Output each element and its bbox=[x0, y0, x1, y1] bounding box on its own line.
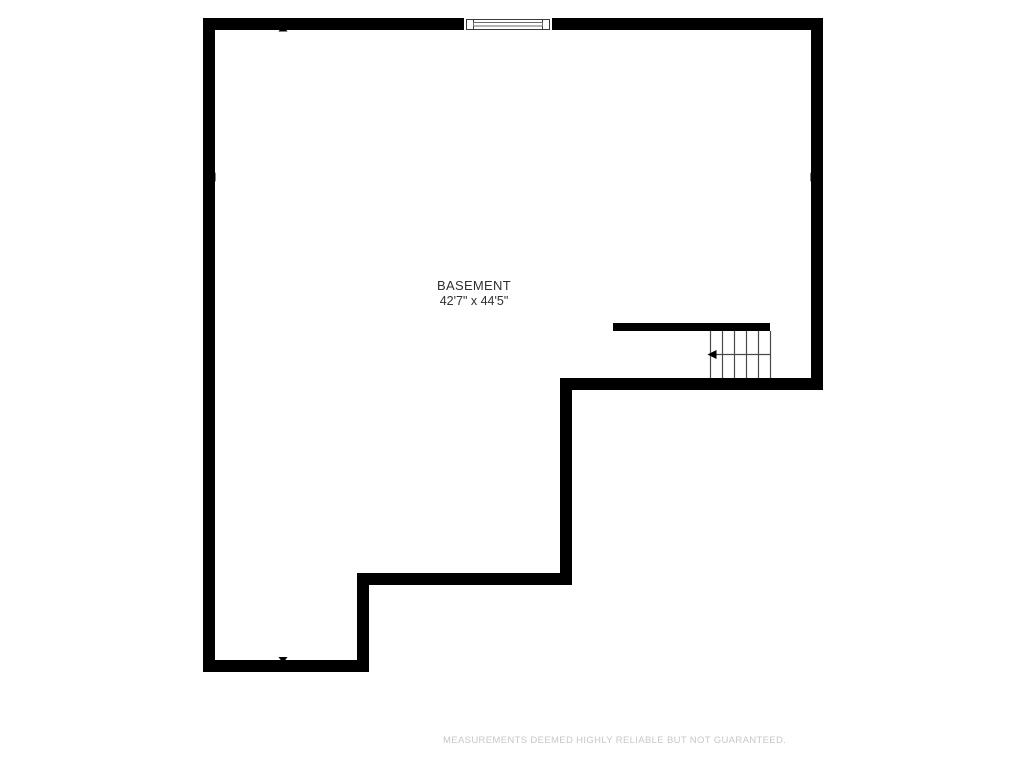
window-right-cap bbox=[543, 20, 550, 30]
disclaimer-text: MEASUREMENTS DEEMED HIGHLY RELIABLE BUT … bbox=[443, 735, 743, 746]
stair-direction-arrow-icon bbox=[708, 350, 717, 359]
staircase bbox=[613, 323, 771, 378]
floorplan-page: BASEMENT 42'7" x 44'5" MEASUREMENTS DEEM… bbox=[0, 0, 1024, 768]
room-dimensions: 42'7" x 44'5" bbox=[354, 294, 594, 309]
room-label: BASEMENT 42'7" x 44'5" bbox=[354, 278, 594, 309]
window-left-cap bbox=[467, 20, 474, 30]
window-icon bbox=[464, 15, 552, 33]
room-name: BASEMENT bbox=[354, 278, 594, 293]
stair-upper-wall bbox=[613, 323, 770, 331]
basement-wall-outline bbox=[209, 24, 817, 666]
basement-floorplan-drawing bbox=[0, 0, 1024, 768]
window-pane bbox=[474, 23, 543, 27]
